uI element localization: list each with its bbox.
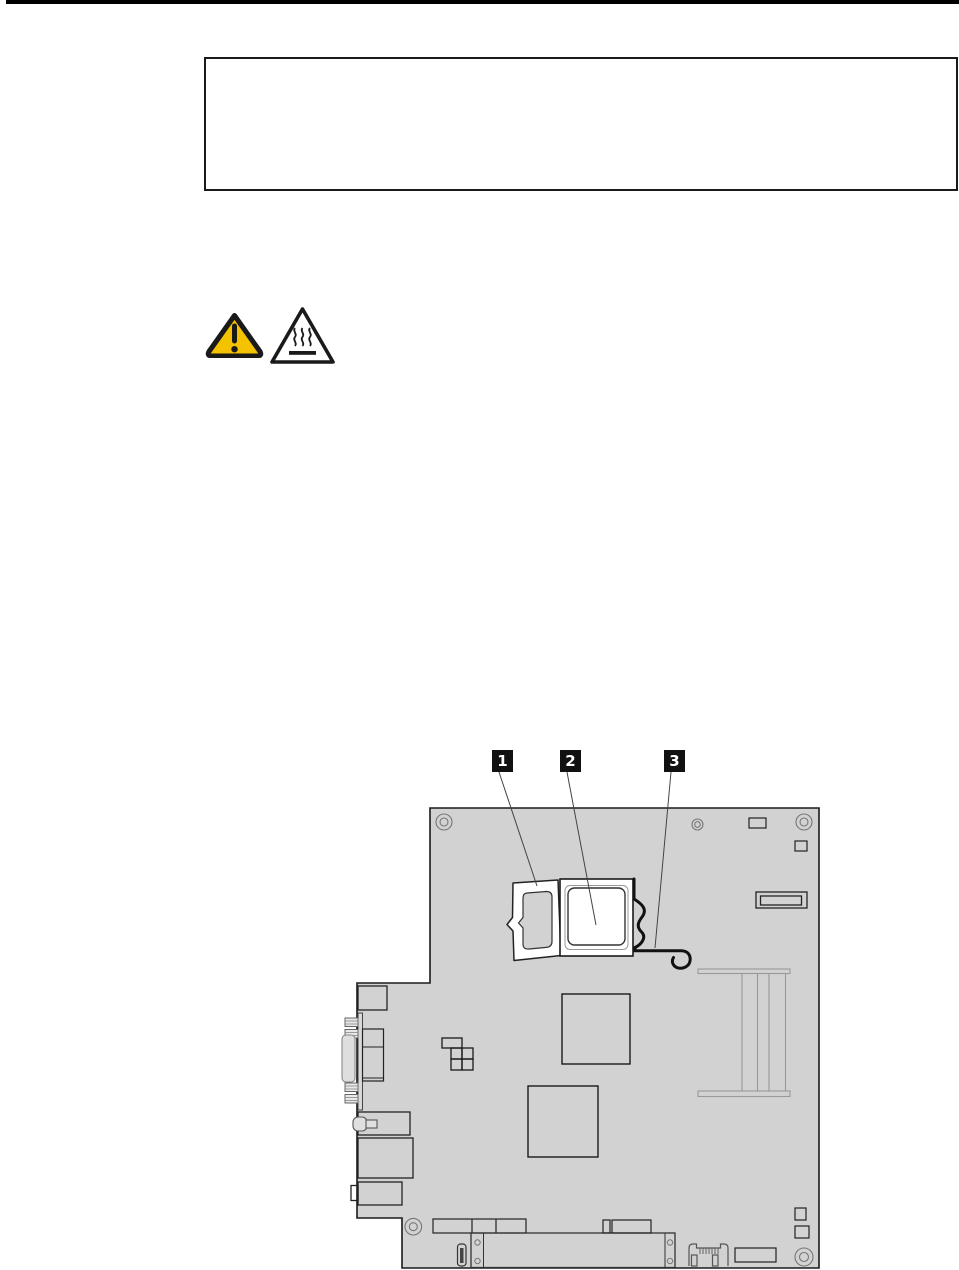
- document-page: 1 2 3: [0, 0, 959, 1270]
- dsub-connector-body: [342, 1035, 355, 1082]
- system-board-outline: [357, 808, 819, 1268]
- system-board-diagram: [0, 0, 959, 1270]
- socket-cover-window: [519, 892, 553, 950]
- microprocessor: [568, 888, 625, 945]
